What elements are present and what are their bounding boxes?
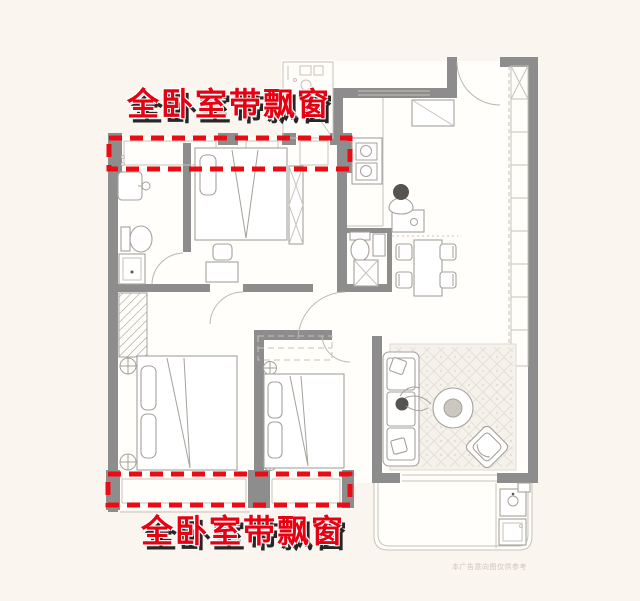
- pillow-icon: [200, 155, 216, 195]
- desk-icon: [206, 262, 238, 282]
- toilet-icon: [121, 226, 152, 252]
- bath-vanity-icon: [119, 254, 145, 284]
- living-room: [383, 344, 516, 470]
- watermark-text: 本广告意向图仅供参考: [452, 562, 527, 572]
- closet-icon: [119, 293, 147, 357]
- dining-chair-icon: [440, 272, 456, 288]
- laundry-sink-icon: [500, 489, 526, 516]
- annotation-bottom: 全卧室带飘窗: [141, 515, 345, 547]
- pillow-icon: [141, 366, 156, 410]
- coffee-table-icon: [433, 388, 473, 428]
- pillow-icon: [141, 414, 156, 458]
- washing-machine-icon: [499, 519, 526, 545]
- wardrobe-icon: [289, 166, 303, 244]
- stove-icon: [352, 138, 382, 184]
- annotation-top: 全卧室带飘窗: [127, 88, 331, 120]
- chair-icon: [213, 244, 232, 260]
- double-bed-icon: [264, 374, 344, 468]
- double-bed-icon: [137, 356, 237, 470]
- dining-chair-icon: [396, 272, 412, 288]
- pillow-icon: [268, 422, 282, 458]
- ceiling-symbol-icon: [264, 362, 277, 375]
- small-box-icon: [518, 483, 530, 492]
- single-bed-icon: [195, 148, 287, 240]
- shower-icon: [354, 260, 378, 286]
- dining-chair-icon: [396, 244, 412, 260]
- pillow-icon: [268, 382, 282, 418]
- cabinet-icon: [373, 234, 385, 256]
- toilet-icon: [350, 232, 370, 261]
- floor-plan: 全卧室带飘窗 全卧室带飘窗 本广告意向图仅供参考: [0, 0, 640, 601]
- range-hood-icon: [412, 100, 454, 126]
- ceiling-symbol-icon: [120, 454, 136, 470]
- ceiling-symbol-icon: [120, 358, 136, 374]
- dining-chair-icon: [440, 244, 456, 260]
- dining-table-icon: [414, 240, 442, 296]
